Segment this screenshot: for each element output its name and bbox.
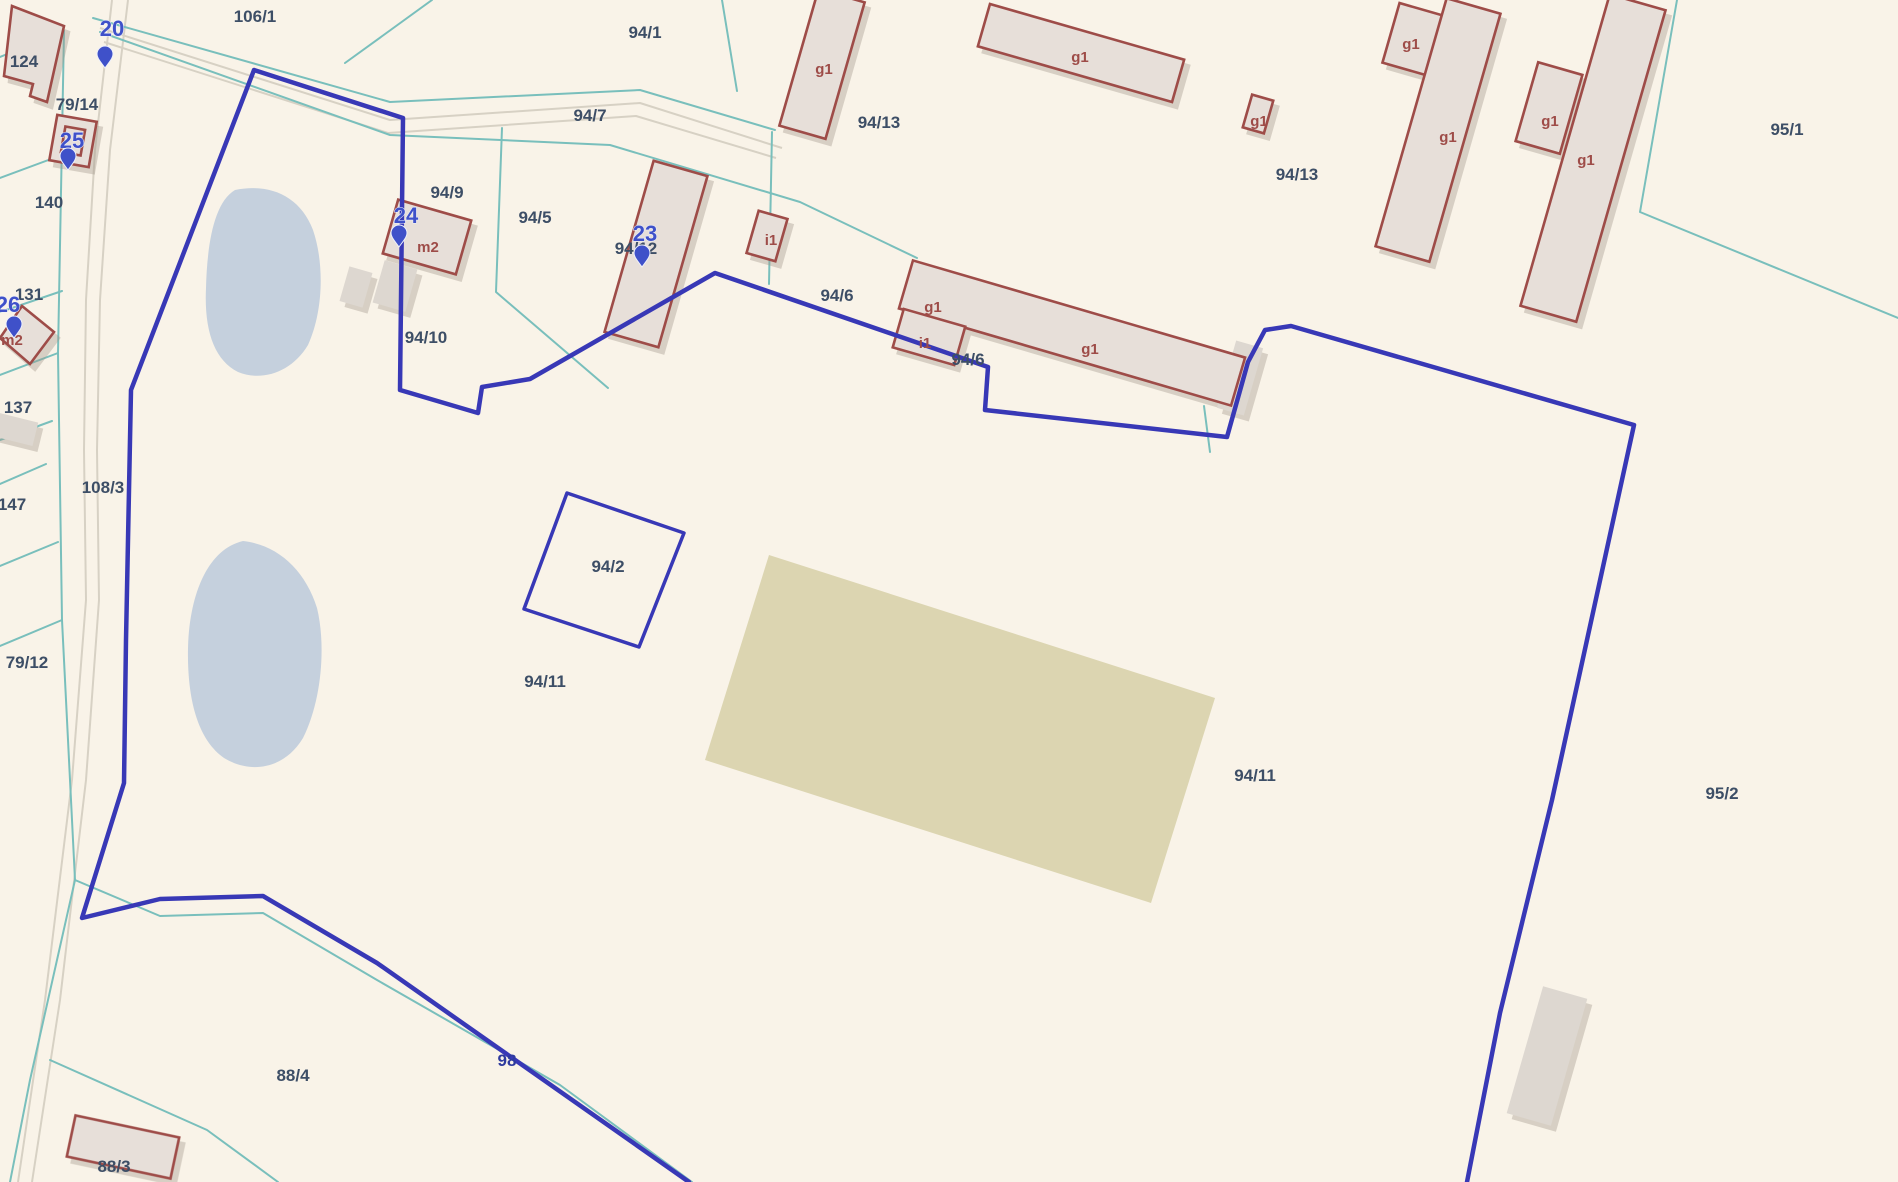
parcel-label-137: 137 — [4, 398, 32, 417]
parcel-label-94-6a: 94/6 — [820, 286, 853, 305]
building-label-g1-north: g1 — [815, 61, 833, 78]
parcel-label-106-1: 106/1 — [234, 7, 277, 26]
parcel-label-94-1: 94/1 — [628, 23, 661, 42]
parcel-label-94-9: 94/9 — [430, 183, 463, 202]
parcel-label-94-7: 94/7 — [573, 106, 606, 125]
parcel-label-94-11a: 94/11 — [524, 672, 566, 691]
address-marker-20-number: 20 — [100, 16, 124, 41]
parcel-label-147: 147 — [0, 495, 26, 514]
parcel-label-79-14: 79/14 — [56, 95, 99, 114]
building-label-g1-tall-b: g1 — [1439, 129, 1457, 146]
building-label-g1-square-d: g1 — [1541, 113, 1559, 130]
parcel-label-94-6b: 94/6 — [951, 350, 984, 369]
parcel-label-124: 124 — [10, 52, 39, 71]
parcel-label-88-3: 88/3 — [97, 1157, 130, 1176]
pond-north — [206, 188, 321, 376]
parcel-label-95-2: 95/2 — [1705, 784, 1738, 803]
parcel-label-88-4: 88/4 — [276, 1066, 310, 1085]
address-marker-23-number: 23 — [633, 221, 657, 246]
cadastral-map[interactable]: 106/1 94/1 124 79/14 140 131 137 147 108… — [0, 0, 1898, 1182]
building-label-i1-annex: i1 — [919, 335, 932, 352]
parcel-label-94-13a: 94/13 — [858, 113, 901, 132]
building-label-g1-central-right: g1 — [1081, 341, 1099, 358]
parcel-label-94-2: 94/2 — [591, 557, 624, 576]
parcel-label-94-11b: 94/11 — [1234, 766, 1276, 785]
building-label-g1-central-left: g1 — [924, 299, 942, 316]
parcel-label-140: 140 — [35, 193, 63, 212]
map-canvas[interactable]: 106/1 94/1 124 79/14 140 131 137 147 108… — [0, 0, 1898, 1182]
parcel-label-94-10: 94/10 — [405, 328, 448, 347]
building-label-m2-94-9: m2 — [417, 239, 439, 256]
parcel-label-79-12: 79/12 — [6, 653, 49, 672]
building-label-i1-small: i1 — [765, 232, 778, 249]
building-label-g1-tiny: g1 — [1250, 113, 1268, 130]
building-label-g1-square-a: g1 — [1402, 36, 1420, 53]
parcel-label-108-3: 108/3 — [82, 478, 125, 497]
building-label-g1-top-long: g1 — [1071, 49, 1089, 66]
parcel-label-98-road: 98 — [498, 1051, 517, 1070]
building-label-g1-long-c: g1 — [1577, 152, 1595, 169]
parcel-label-95-1: 95/1 — [1770, 120, 1803, 139]
address-marker-26-number: 26 — [0, 292, 20, 317]
parcel-label-94-13b: 94/13 — [1276, 165, 1319, 184]
address-marker-24-number: 24 — [394, 203, 419, 228]
parcel-label-94-5: 94/5 — [518, 208, 551, 227]
